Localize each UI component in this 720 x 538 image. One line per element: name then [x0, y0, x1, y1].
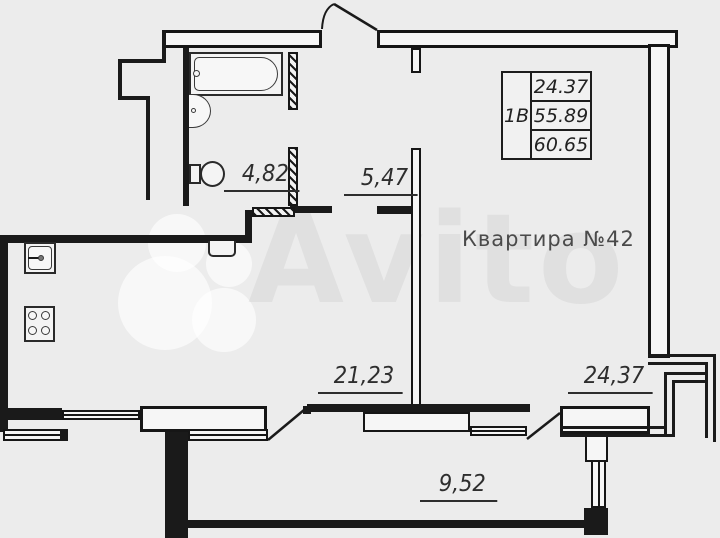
- area-value-cell: 55.89: [531, 101, 591, 130]
- area-label-balcony: 9,52: [420, 472, 497, 502]
- door-swings: [0, 0, 720, 538]
- apartment-type-cell: 1В: [502, 72, 531, 159]
- area-label-kitchen-living: 21,23: [318, 364, 403, 394]
- area-info-table: 1В 24.37 55.89 60.65: [501, 71, 592, 160]
- area-label-hallway: 5,47: [344, 166, 418, 196]
- area-label-bathroom: 4,82: [224, 162, 299, 192]
- floor-plan: Avito: [0, 0, 720, 538]
- apartment-title: Квартира №42: [462, 227, 635, 251]
- area-value-cell: 24.37: [531, 72, 591, 101]
- area-label-room: 24,37: [568, 364, 653, 394]
- area-value-cell: 60.65: [531, 130, 591, 159]
